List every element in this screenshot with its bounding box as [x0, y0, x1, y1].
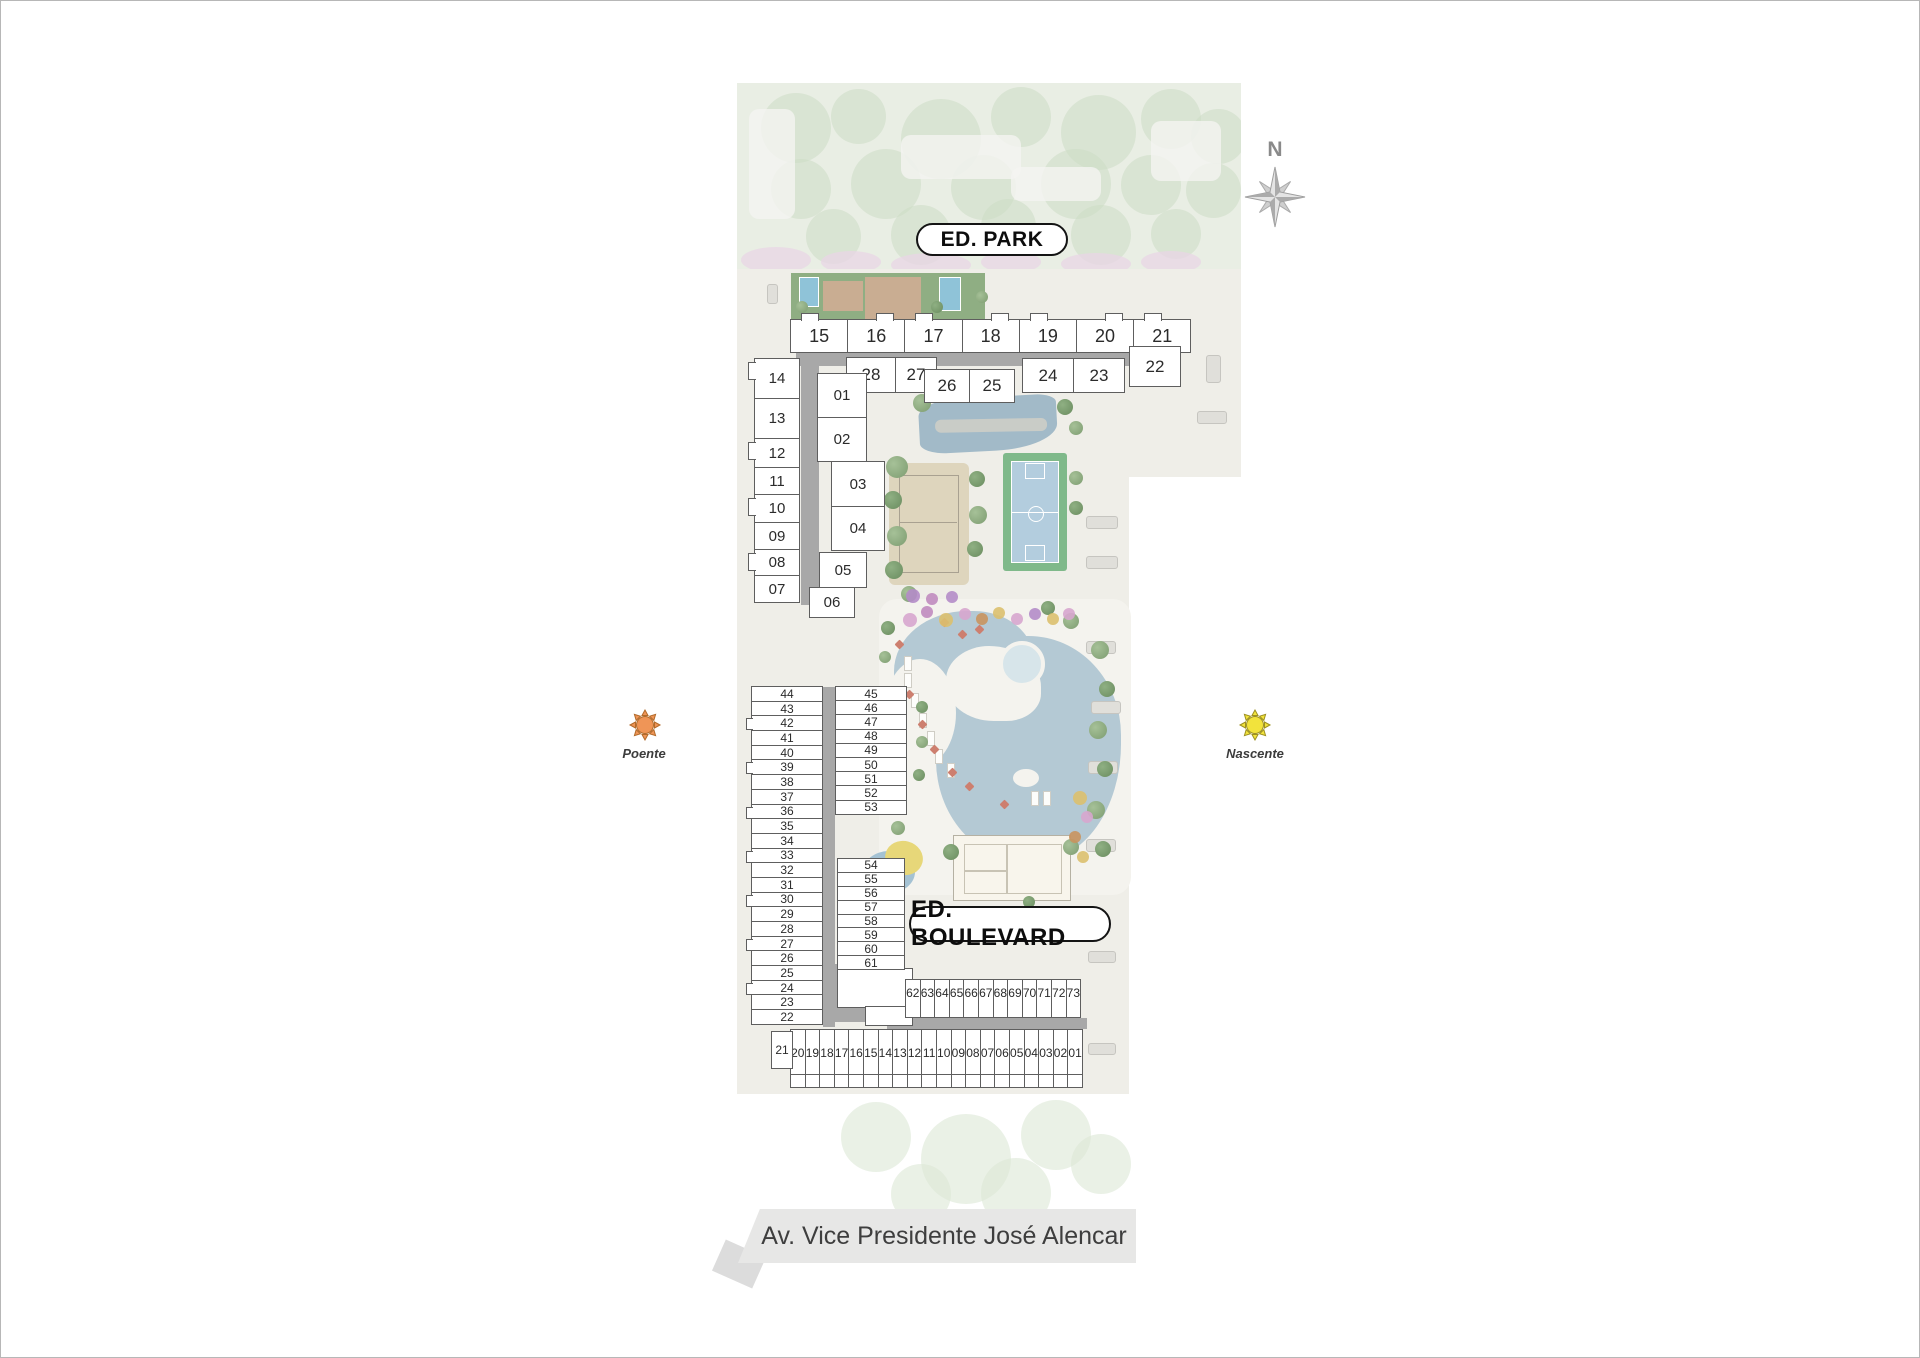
terrace-patio [823, 281, 863, 311]
flower-tree-icon [906, 589, 920, 603]
tree-icon [967, 541, 983, 557]
unit-cell: 03 [831, 461, 885, 507]
unit-cell: 24 [1022, 358, 1074, 393]
tree-icon [969, 471, 985, 487]
tree-icon [885, 561, 903, 579]
ed-park-label: ED. PARK [916, 223, 1068, 256]
unit-cell: 08 [754, 549, 800, 576]
unit-cell: 58 [837, 914, 905, 929]
unit-cell: 49 [835, 743, 907, 758]
unit-cell: 42 [751, 715, 823, 731]
tree-icon [841, 1102, 911, 1172]
flower-tree-icon [921, 606, 933, 618]
lounger-icon [904, 656, 912, 671]
flower-tree-icon [1011, 613, 1023, 625]
unit-cell: 57 [837, 900, 905, 915]
unit-cell: 19 [1019, 319, 1077, 353]
boulevard-west-inner-column-upper: 454647484950515253 [835, 687, 907, 815]
unit-cell: 05 [819, 552, 867, 588]
tree-icon [884, 491, 902, 509]
unit-cell: 44 [751, 686, 823, 702]
street-band: Av. Vice Presidente José Alencar [738, 1209, 1136, 1263]
unit-cell: 23 [1073, 358, 1125, 393]
unit-cell: 30 [751, 892, 823, 908]
party-room [953, 835, 1071, 901]
unit-cell: 25 [751, 965, 823, 981]
car-icon [1086, 556, 1118, 569]
unit-cell: 17 [834, 1029, 850, 1088]
unit-cell: 06 [809, 587, 855, 618]
unit-cell: 13 [892, 1029, 908, 1088]
unit-cell: 15 [863, 1029, 879, 1088]
unit-cell: 22 [751, 1009, 823, 1025]
tree-icon [976, 291, 988, 303]
unit-cell: 17 [904, 319, 962, 353]
compass-icon [1239, 161, 1311, 233]
sports-court [1003, 453, 1067, 571]
unit-cell: 54 [837, 858, 905, 873]
unit-cell: 27 [751, 936, 823, 952]
tree-icon [796, 301, 808, 313]
flower-tree-icon [946, 591, 958, 603]
unit-cell: 65 [949, 979, 965, 1018]
car-icon [1088, 1043, 1116, 1055]
unit-cell: 33 [751, 848, 823, 864]
ed-boulevard-label-text: ED. BOULEVARD [911, 896, 1109, 952]
unit-cell: 12 [754, 438, 800, 468]
tree-icon [879, 651, 891, 663]
unit-cell: 16 [847, 319, 905, 353]
unit-cell: 18 [819, 1029, 835, 1088]
unit-cell: 34 [751, 833, 823, 849]
unit-cell: 20 [1076, 319, 1134, 353]
unit-cell: 16 [848, 1029, 864, 1088]
unit-cell: 15 [790, 319, 848, 353]
unit-cell: 50 [835, 757, 907, 772]
tree-icon [913, 769, 925, 781]
court-key [1025, 545, 1045, 561]
unit-cell: 08 [965, 1029, 981, 1088]
unit-cell: 02 [1053, 1029, 1069, 1088]
tree-icon [1097, 761, 1113, 777]
flower-tree-icon [959, 608, 971, 620]
unit-cell: 14 [754, 358, 800, 399]
tree-icon [1069, 501, 1083, 515]
unit-cell: 60 [837, 941, 905, 956]
court-key [1025, 463, 1045, 479]
unit-cell: 26 [751, 950, 823, 966]
tree-icon [1089, 721, 1107, 739]
park-row-24-23: 2423 [1023, 358, 1125, 393]
flower-tree-icon [939, 613, 953, 627]
unit-cell: 24 [751, 980, 823, 996]
street-name: Av. Vice Presidente José Alencar [747, 1222, 1127, 1251]
unit-cell-22: 22 [1129, 346, 1181, 387]
unit-cell: 73 [1066, 979, 1082, 1018]
unit-cell: 36 [751, 804, 823, 820]
tree-icon [916, 736, 928, 748]
unit-cell: 31 [751, 877, 823, 893]
pool-island [967, 701, 987, 715]
unit-cell: 01 [817, 373, 867, 418]
car-icon [767, 284, 778, 304]
unit-cell: 11 [754, 467, 800, 495]
unit-cell: 05 [1009, 1029, 1025, 1088]
flower-tree-icon [993, 607, 1005, 619]
blossom-tree-icon [1141, 251, 1201, 271]
flower-tree-icon [1069, 831, 1081, 843]
tree-icon [916, 701, 928, 713]
car-icon [1088, 951, 1116, 963]
unit-cell: 59 [837, 927, 905, 942]
north-label: N [1239, 139, 1311, 161]
car-icon [1086, 516, 1118, 529]
unit-cell: 10 [754, 494, 800, 523]
unit-cell: 18 [962, 319, 1020, 353]
tree-icon [887, 526, 907, 546]
unit-cell: 46 [835, 700, 907, 715]
spa-icon [999, 641, 1045, 687]
corridor [887, 1018, 1087, 1029]
unit-cell: 67 [978, 979, 994, 1018]
park-path [749, 109, 795, 219]
unit-cell: 09 [754, 522, 800, 550]
pool-island [1013, 769, 1039, 787]
flower-tree-icon [1077, 851, 1089, 863]
unit-cell: 41 [751, 730, 823, 746]
unit-cell: 04 [831, 506, 885, 551]
unit-cell: 69 [1007, 979, 1023, 1018]
unit-cell: 71 [1036, 979, 1052, 1018]
ed-park-label-text: ED. PARK [941, 228, 1044, 252]
flower-tree-icon [1063, 608, 1075, 620]
tree-icon [969, 506, 987, 524]
unit-cell: 25 [969, 369, 1015, 403]
unit-cell: 51 [835, 771, 907, 786]
unit-cell: 10 [936, 1029, 952, 1088]
flower-tree-icon [1047, 613, 1059, 625]
car-icon [1197, 411, 1227, 424]
ed-boulevard-label: ED. BOULEVARD [909, 906, 1111, 942]
park-path [1151, 121, 1221, 181]
unit-cell: 43 [751, 701, 823, 717]
flower-tree-icon [1073, 791, 1087, 805]
site-plan-canvas: Av. Vice Presidente José Alencar 1 [0, 0, 1920, 1358]
unit-cell: 02 [817, 417, 867, 462]
tree-icon [943, 844, 959, 860]
unit-cell: 53 [835, 800, 907, 815]
park-path [901, 135, 1021, 179]
unit-cell: 56 [837, 886, 905, 901]
unit-cell: 40 [751, 745, 823, 761]
unit-cell: 19 [805, 1029, 821, 1088]
unit-cell: 01 [1067, 1029, 1083, 1088]
tree-icon [1069, 471, 1083, 485]
unit-cell: 26 [924, 369, 970, 403]
unit-cell: 11 [921, 1029, 937, 1088]
tree-icon [931, 301, 943, 313]
tree-icon [1057, 399, 1073, 415]
park-row-26-25: 2625 [925, 369, 1015, 403]
unit-cell: 14 [878, 1029, 894, 1088]
flower-tree-icon [976, 613, 988, 625]
unit-cell: 06 [994, 1029, 1010, 1088]
park-west-outer-column: 1413121110090807 [754, 359, 800, 603]
unit-cell: 37 [751, 789, 823, 805]
tree-icon [1071, 1134, 1131, 1194]
blossom-tree-icon [821, 251, 881, 271]
unit-cell: 52 [835, 785, 907, 800]
park-path [1011, 167, 1101, 201]
boulevard-south-row-upper: 626364656667686970717273 [906, 979, 1081, 1018]
tree-icon [1095, 841, 1111, 857]
unit-cell: 61 [837, 955, 905, 970]
unit-cell: 63 [920, 979, 936, 1018]
tree-icon [1091, 641, 1109, 659]
unit-cell-21: 21 [771, 1031, 793, 1069]
lounger-icon [1043, 791, 1051, 806]
unit-cell: 45 [835, 686, 907, 701]
unit-cell: 38 [751, 774, 823, 790]
sun-west-label: Poente [599, 746, 689, 761]
sun-east-label: Nascente [1210, 746, 1300, 761]
sun-west-icon [627, 707, 663, 748]
unit-cell: 47 [835, 714, 907, 729]
unit-cell: 07 [754, 575, 800, 603]
unit-cell: 68 [993, 979, 1009, 1018]
boulevard-south-row-lower: 2019181716151413121110090807060504030201 [791, 1029, 1083, 1088]
unit-cell: 23 [751, 994, 823, 1010]
unit-cell: 70 [1022, 979, 1038, 1018]
unit-cell: 04 [1024, 1029, 1040, 1088]
car-icon [1091, 701, 1121, 714]
tree-icon [881, 621, 895, 635]
flower-tree-icon [926, 593, 938, 605]
unit-cell: 62 [905, 979, 921, 1018]
car-icon [1206, 355, 1221, 383]
tree-icon [831, 89, 886, 144]
unit-cell: 64 [934, 979, 950, 1018]
building-footprint [837, 968, 913, 1008]
unit-cell: 28 [751, 921, 823, 937]
unit-cell: 13 [754, 398, 800, 439]
boulevard-west-outer-column: 4443424140393837363534333231302928272625… [751, 687, 823, 1025]
tree-icon [886, 456, 908, 478]
boulevard-west-inner-column-lower: 5455565758596061 [837, 859, 905, 970]
unit-cell: 32 [751, 862, 823, 878]
unit-cell: 72 [1051, 979, 1067, 1018]
unit-cell: 09 [951, 1029, 967, 1088]
tree-icon [1099, 681, 1115, 697]
south-landscape-area [831, 1094, 1131, 1206]
flower-tree-icon [1029, 608, 1041, 620]
unit-cell: 39 [751, 759, 823, 775]
unit-cell: 66 [963, 979, 979, 1018]
sun-east-icon [1237, 707, 1273, 748]
unit-cell: 48 [835, 729, 907, 744]
unit-cell: 55 [837, 872, 905, 887]
unit-cell: 03 [1038, 1029, 1054, 1088]
unit-cell: 12 [907, 1029, 923, 1088]
tree-icon [1069, 421, 1083, 435]
unit-cell: 35 [751, 818, 823, 834]
lounger-icon [1031, 791, 1039, 806]
flower-tree-icon [903, 613, 917, 627]
blossom-tree-icon [741, 247, 811, 271]
flower-tree-icon [1081, 811, 1093, 823]
unit-cell: 07 [980, 1029, 996, 1088]
compass-rose: N [1239, 139, 1311, 249]
tree-icon [891, 821, 905, 835]
unit-cell: 29 [751, 906, 823, 922]
